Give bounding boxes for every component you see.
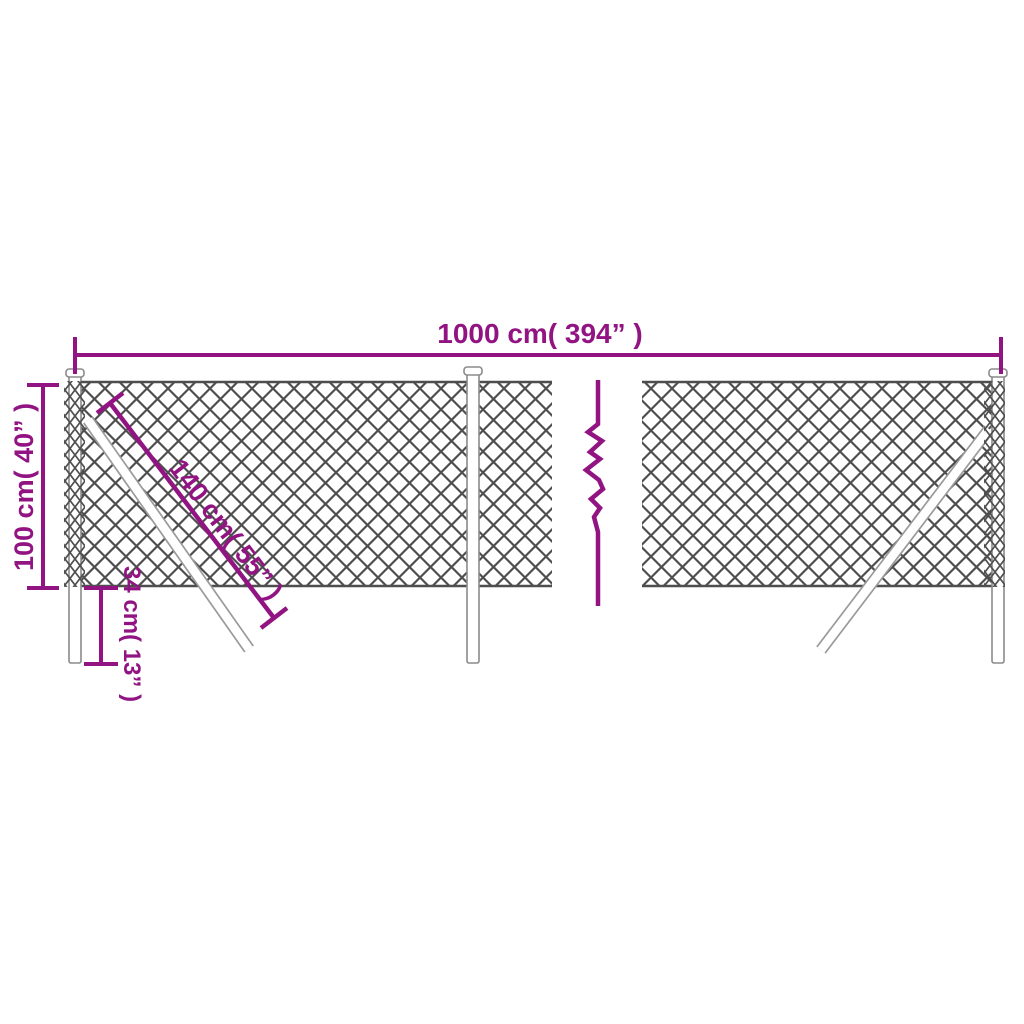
mesh-wrap-right-post [984,381,1005,587]
post-cap-right [989,369,1007,377]
mesh-wrap-left-post [64,381,85,587]
height-dimension-label: 100 cm( 40” ) [9,403,39,571]
post-depth-dimension-label: 34 cm( 13” ) [118,566,145,702]
width-dimension-label: 1000 cm( 394” ) [437,318,642,349]
right-fence-section [642,369,1007,663]
dimension-width: 1000 cm( 394” ) [75,318,1001,374]
dimension-post-depth: 34 cm( 13” ) [84,566,145,702]
fence-dimension-diagram: 1000 cm( 394” ) 100 cm( 40” ) 140 cm( 55… [0,0,1024,1024]
brace-dimension-tick-bottom [261,608,287,628]
fence-post-middle [467,371,479,663]
break-mark-zigzag [586,380,603,606]
diagram-drawing: 1000 cm( 394” ) 100 cm( 40” ) 140 cm( 55… [0,0,1024,1024]
dimension-height: 100 cm( 40” ) [9,385,59,588]
post-cap-middle [464,367,482,375]
